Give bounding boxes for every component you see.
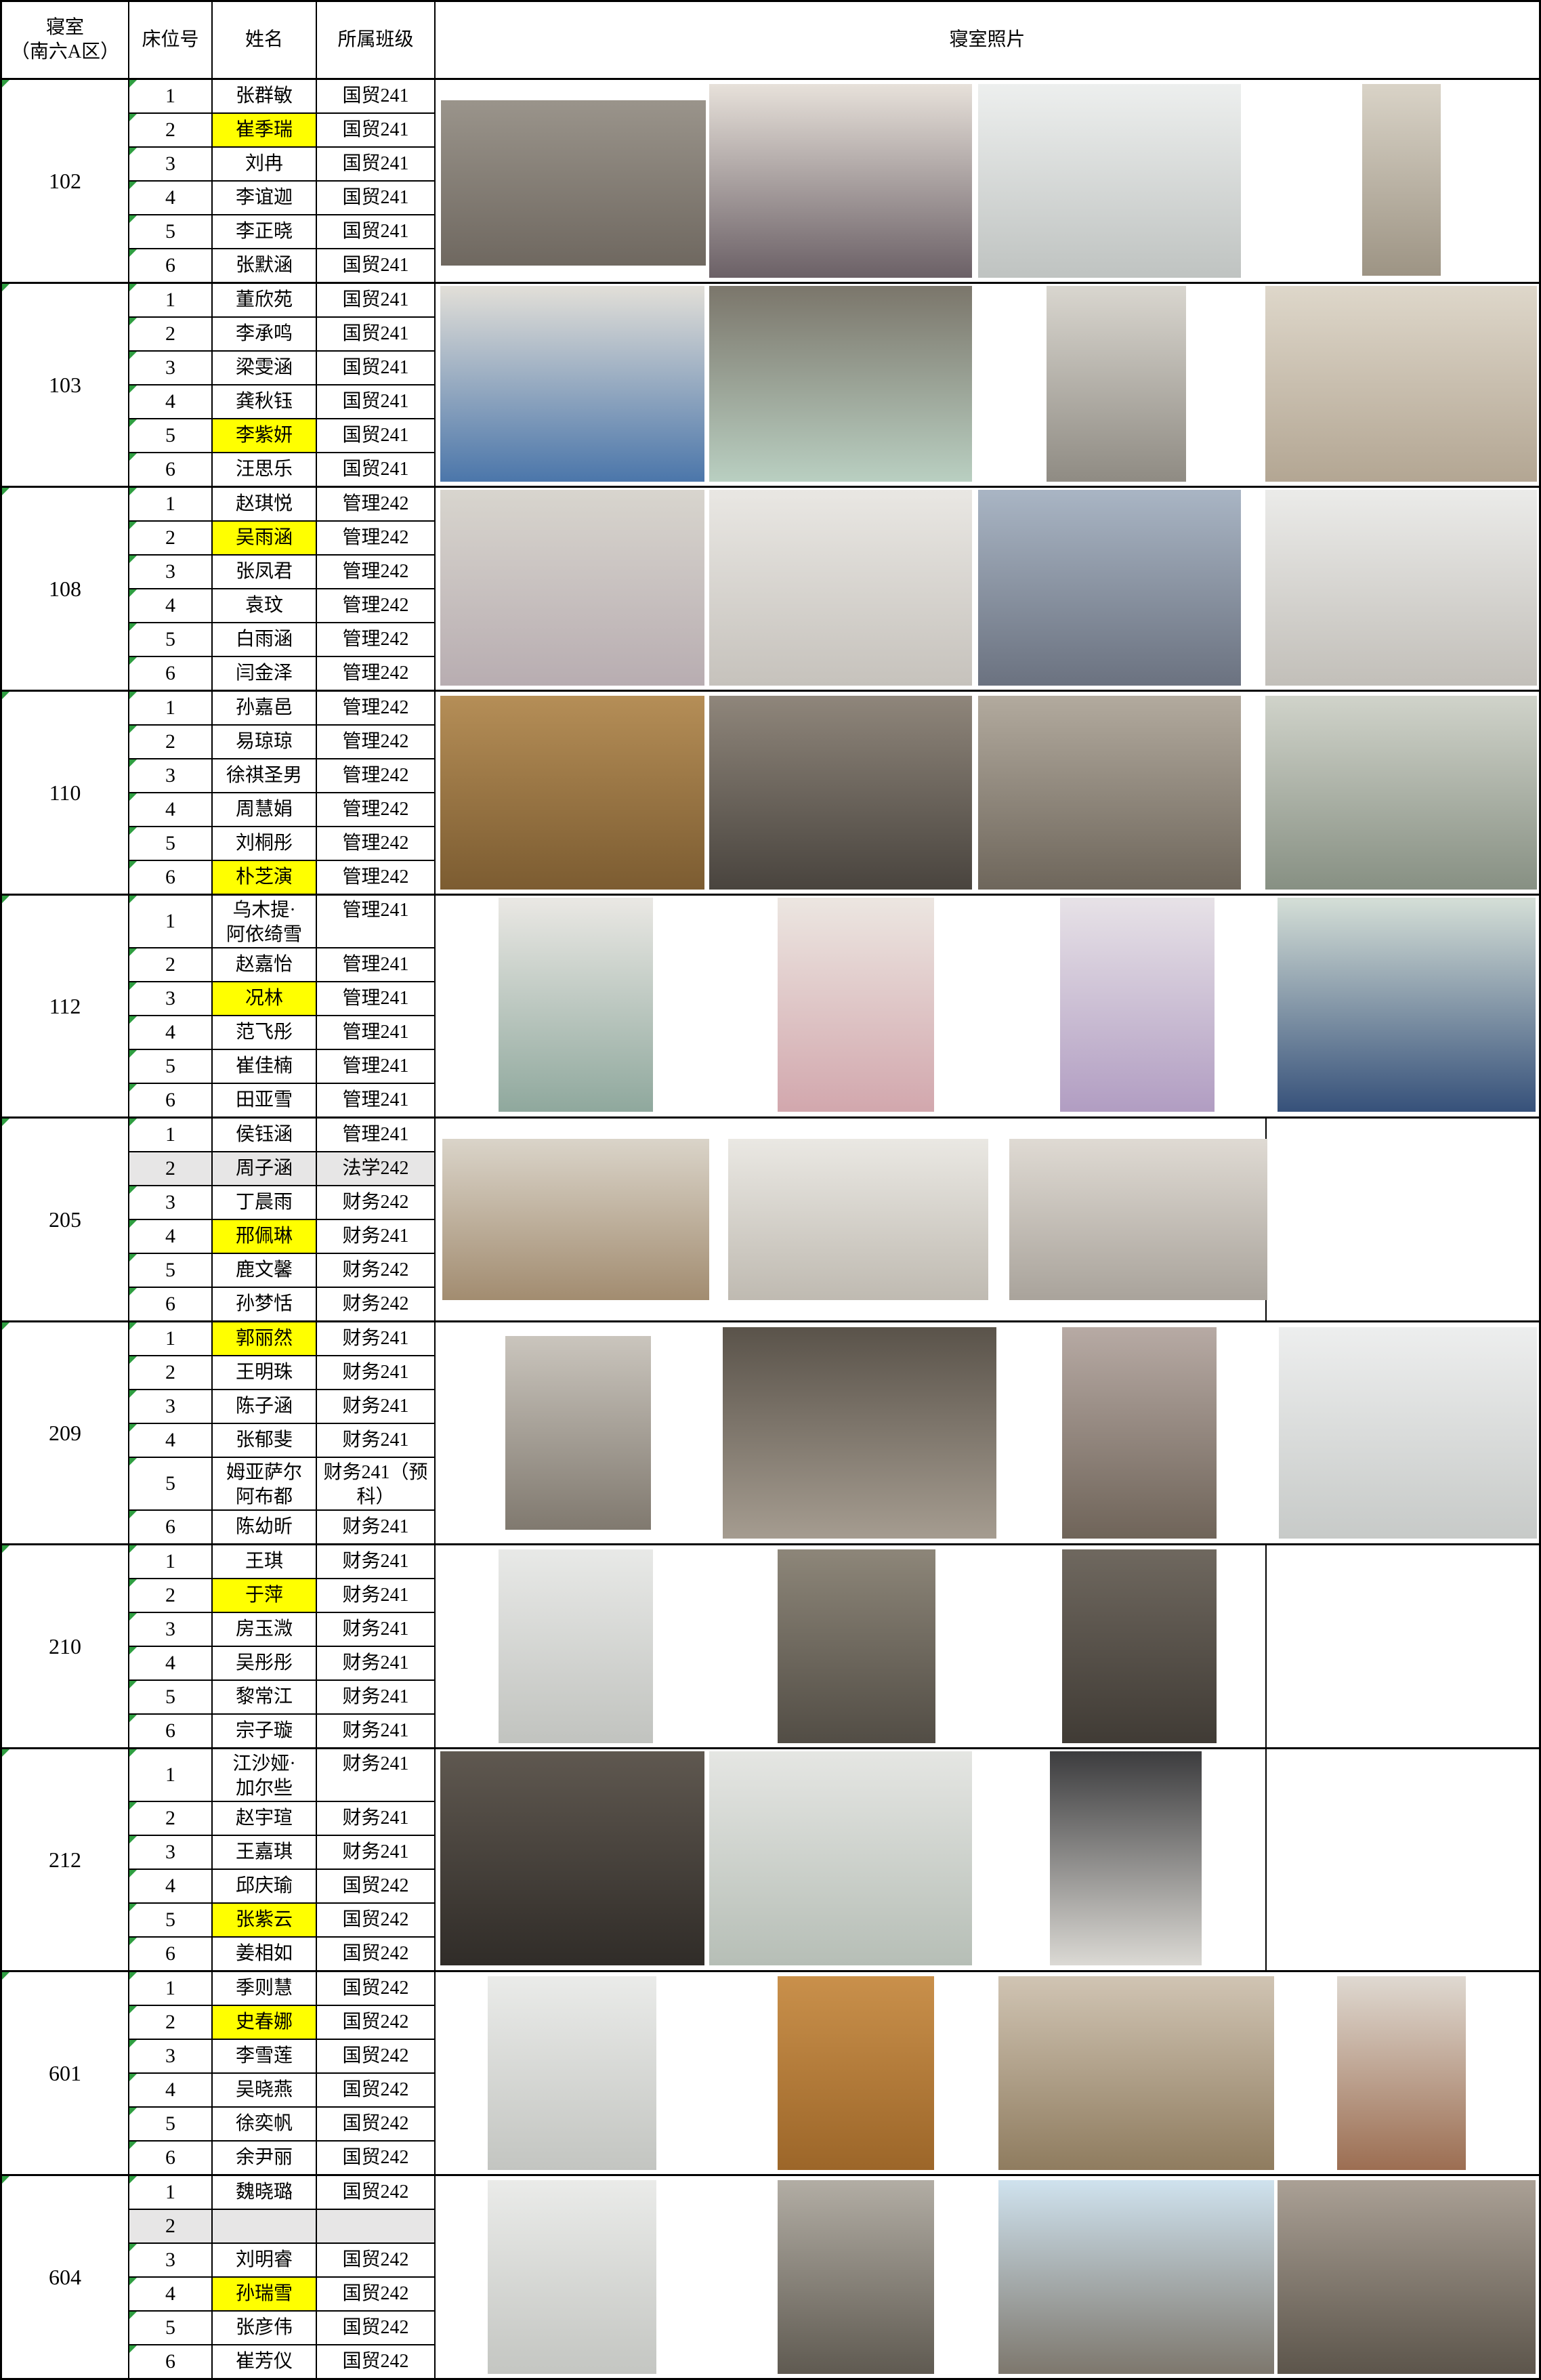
bed-number: 2 (165, 119, 175, 142)
bed-number-cell[interactable]: 6 (129, 1715, 213, 1747)
class-cell[interactable]: 国贸242 (317, 2278, 436, 2310)
bed-number-cell[interactable]: 4 (129, 2074, 213, 2106)
student-name-cell[interactable]: 周子涵 (213, 1152, 317, 1185)
comment-triangle-icon (129, 114, 137, 121)
room-number-cell[interactable]: 209 (2, 1322, 129, 1543)
class-cell[interactable]: 财务241 (317, 1681, 436, 1713)
room-number: 604 (49, 2265, 81, 2290)
class-cell[interactable]: 国贸241 (317, 182, 436, 214)
room-photos-area (436, 1749, 1539, 1970)
room-number-cell[interactable]: 108 (2, 488, 129, 690)
class-cell[interactable]: 国贸241 (317, 148, 436, 180)
bed-number-cell[interactable]: 1 (129, 488, 213, 520)
student-name-cell[interactable]: 袁玟 (213, 589, 317, 622)
student-name-cell[interactable]: 李紫妍 (213, 419, 317, 452)
bed-number-cell[interactable]: 3 (129, 759, 213, 792)
bed-number-cell[interactable]: 1 (129, 1322, 213, 1355)
student-name-cell[interactable]: 李正晓 (213, 215, 317, 248)
class-cell[interactable]: 财务242 (317, 1186, 436, 1219)
bed-number: 2 (165, 953, 175, 976)
bed-row: 5张紫云国贸242 (129, 1904, 436, 1938)
comment-triangle-icon (129, 1579, 137, 1587)
student-name-cell[interactable]: 赵宇瑄 (213, 1802, 317, 1835)
bed-number-cell[interactable]: 4 (129, 2278, 213, 2310)
class-cell[interactable]: 管理242 (317, 726, 436, 758)
bed-row: 3况林管理241 (129, 982, 436, 1016)
comment-triangle-icon (129, 2176, 137, 2184)
class-cell[interactable]: 管理241 (317, 1084, 436, 1116)
class-cell[interactable]: 国贸241 (317, 318, 436, 350)
bed-number-cell[interactable]: 1 (129, 80, 213, 112)
comment-triangle-icon (2, 1545, 9, 1553)
bed-row: 2赵宇瑄财务241 (129, 1802, 436, 1836)
comment-triangle-icon (129, 1186, 137, 1194)
bed-number-cell[interactable]: 3 (129, 2244, 213, 2276)
beds-column: 1郭丽然财务2412王明珠财务2413陈子涵财务2414张郁斐财务2415姆亚萨… (129, 1322, 436, 1543)
student-name-cell[interactable]: 徐奕帆 (213, 2108, 317, 2140)
student-name-cell[interactable]: 魏晓璐 (213, 2176, 317, 2209)
class-cell[interactable]: 国贸242 (317, 2312, 436, 2344)
bed-row: 1乌木提· 阿依绮雪管理241 (129, 896, 436, 948)
bed-row: 1季则慧国贸242 (129, 1972, 436, 2006)
student-name-cell[interactable]: 孙嘉邑 (213, 692, 317, 724)
student-name-cell[interactable]: 王琪 (213, 1545, 317, 1578)
bed-number-cell[interactable]: 2 (129, 1802, 213, 1835)
comment-triangle-icon (129, 2345, 137, 2353)
comment-triangle-icon (129, 1511, 137, 1518)
bed-number-cell[interactable]: 5 (129, 2312, 213, 2344)
table-header-row: 寝室 （南六A区） 床位号 姓名 所属班级 寝室照片 (2, 2, 1539, 80)
student-name-cell[interactable]: 张默涵 (213, 249, 317, 282)
student-name-cell[interactable]: 黎常江 (213, 1681, 317, 1713)
bed-number-cell[interactable]: 3 (129, 148, 213, 180)
class-cell[interactable]: 财务241 (317, 1322, 436, 1355)
student-name-cell[interactable]: 郭丽然 (213, 1322, 317, 1355)
bed-number-cell[interactable]: 2 (129, 726, 213, 758)
bed-number: 6 (165, 1942, 175, 1965)
class-cell[interactable]: 国贸241 (317, 284, 436, 316)
bed-number-cell[interactable]: 3 (129, 556, 213, 588)
bed-number-cell[interactable]: 5 (129, 1904, 213, 1936)
student-name-cell[interactable]: 张彦伟 (213, 2312, 317, 2344)
student-name-cell[interactable]: 季则慧 (213, 1972, 317, 2005)
room-number-cell[interactable]: 210 (2, 1545, 129, 1747)
class-cell[interactable]: 财务242 (317, 1254, 436, 1287)
bed-number: 4 (165, 186, 175, 209)
class-cell[interactable]: 国贸242 (317, 1870, 436, 1902)
class-cell[interactable]: 管理242 (317, 623, 436, 656)
photo-bunks-white-curtain (1265, 696, 1537, 890)
class-cell[interactable]: 管理242 (317, 692, 436, 724)
room-number-cell[interactable]: 103 (2, 284, 129, 486)
student-name-cell[interactable]: 朴芝演 (213, 861, 317, 894)
student-name-cell[interactable]: 于萍 (213, 1579, 317, 1612)
class-cell[interactable]: 国贸242 (317, 2176, 436, 2209)
class-cell[interactable]: 财务241 (317, 1647, 436, 1679)
bed-number-cell[interactable]: 3 (129, 982, 213, 1015)
class-cell[interactable]: 管理242 (317, 488, 436, 520)
class-cell[interactable]: 管理241 (317, 896, 436, 947)
header-room-column[interactable]: 寝室 （南六A区） (2, 2, 129, 78)
class-cell[interactable]: 国贸242 (317, 2074, 436, 2106)
student-name-cell[interactable]: 赵嘉怡 (213, 948, 317, 981)
photo-shoe-rack (499, 898, 653, 1112)
room-photos-area (436, 2176, 1539, 2378)
bed-number: 5 (165, 1259, 175, 1282)
bed-row: 5黎常江财务241 (129, 1681, 436, 1715)
student-name-cell[interactable]: 刘明睿 (213, 2244, 317, 2276)
student-name-cell[interactable]: 崔佳楠 (213, 1050, 317, 1083)
header-bed-column[interactable]: 床位号 (129, 2, 213, 78)
bed-number-cell[interactable]: 3 (129, 1390, 213, 1423)
bed-number: 5 (165, 832, 175, 855)
bed-number: 2 (165, 2215, 175, 2238)
student-name-cell[interactable] (213, 2210, 317, 2242)
bed-number-cell[interactable]: 3 (129, 1836, 213, 1868)
bed-number-cell[interactable]: 6 (129, 249, 213, 282)
bed-number-cell[interactable]: 3 (129, 352, 213, 384)
class-cell[interactable]: 管理241 (317, 1119, 436, 1151)
photo-corridor-bunks (1047, 286, 1185, 482)
header-name-column[interactable]: 姓名 (213, 2, 317, 78)
student-name-cell[interactable]: 刘冉 (213, 148, 317, 180)
student-name-cell[interactable]: 王明珠 (213, 1356, 317, 1389)
bed-number-cell[interactable]: 4 (129, 793, 213, 826)
bed-number: 5 (165, 1055, 175, 1078)
bed-number-cell[interactable]: 1 (129, 1749, 213, 1801)
class-cell[interactable]: 财务241 (317, 1424, 436, 1457)
student-name-cell[interactable]: 徐祺圣男 (213, 759, 317, 792)
student-name-cell[interactable]: 汪思乐 (213, 453, 317, 486)
student-name-cell[interactable]: 陈子涵 (213, 1390, 317, 1423)
class-cell[interactable]: 管理241 (317, 1050, 436, 1083)
bed-number-cell[interactable]: 5 (129, 419, 213, 452)
bed-number: 4 (165, 2079, 175, 2102)
room-number-cell[interactable]: 112 (2, 896, 129, 1116)
class-cell[interactable]: 国贸242 (317, 2006, 436, 2039)
bed-number-cell[interactable]: 2 (129, 1579, 213, 1612)
bed-number-cell[interactable]: 2 (129, 114, 213, 146)
photo-poster-drawing-on-desk (440, 696, 705, 890)
bed-number-cell[interactable]: 4 (129, 1870, 213, 1902)
bed-number-cell[interactable]: 6 (129, 1938, 213, 1970)
student-name-cell[interactable]: 江沙娅· 加尔些 (213, 1749, 317, 1801)
bed-number-cell[interactable]: 5 (129, 1458, 213, 1509)
class-cell[interactable]: 财务241 (317, 1749, 436, 1801)
bed-row: 4孙瑞雪国贸242 (129, 2278, 436, 2312)
bed-number-cell[interactable]: 2 (129, 318, 213, 350)
comment-triangle-icon (2, 1972, 9, 1980)
bed-number: 6 (165, 662, 175, 685)
class-cell[interactable]: 管理242 (317, 759, 436, 792)
bed-number-cell[interactable]: 2 (129, 522, 213, 554)
bed-number-cell[interactable]: 6 (129, 2345, 213, 2378)
student-name-cell[interactable]: 丁晨雨 (213, 1186, 317, 1219)
bed-number-cell[interactable]: 2 (129, 1356, 213, 1389)
bed-number: 5 (165, 424, 175, 447)
class-cell[interactable]: 国贸241 (317, 453, 436, 486)
comment-triangle-icon (129, 827, 137, 835)
student-name-cell[interactable]: 侯钰涵 (213, 1119, 317, 1151)
photo-dark-bunk-room-door-light (440, 1751, 705, 1965)
bed-number: 2 (165, 1807, 175, 1830)
room-section: 2101王琪财务2412于萍财务2413房玉溦财务2414吴彤彤财务2415黎常… (2, 1545, 1539, 1749)
student-name-cell[interactable]: 况林 (213, 982, 317, 1015)
bed-number: 2 (165, 1361, 175, 1384)
comment-triangle-icon (129, 80, 137, 87)
bed-row: 4李谊迦国贸241 (129, 182, 436, 215)
room-number-cell[interactable]: 212 (2, 1749, 129, 1970)
comment-triangle-icon (2, 2176, 9, 2184)
class-cell[interactable]: 财务241（预 科） (317, 1458, 436, 1509)
bed-row: 5白雨涵管理242 (129, 623, 436, 657)
room-number-cell[interactable]: 205 (2, 1119, 129, 1320)
student-name-cell[interactable]: 田亚雪 (213, 1084, 317, 1116)
photo-clothes-rack-corridor (1278, 2180, 1536, 2374)
comment-triangle-icon (129, 896, 137, 903)
bed-number-cell[interactable]: 3 (129, 1186, 213, 1219)
room-number-cell[interactable]: 102 (2, 80, 129, 282)
student-name-cell[interactable]: 鹿文馨 (213, 1254, 317, 1287)
header-photos-column[interactable]: 寝室照片 (436, 2, 1539, 78)
class-cell[interactable]: 国贸241 (317, 352, 436, 384)
student-name-cell[interactable]: 邱庆瑜 (213, 1870, 317, 1902)
room-photos-area (436, 1545, 1539, 1747)
class-cell[interactable]: 国贸242 (317, 1938, 436, 1970)
student-name-cell[interactable]: 梁雯涵 (213, 352, 317, 384)
bed-number: 3 (165, 1841, 175, 1864)
class-cell[interactable]: 财务241 (317, 1511, 436, 1543)
student-name-cell[interactable]: 宗子璇 (213, 1715, 317, 1747)
student-name-cell[interactable]: 孙梦恬 (213, 1288, 317, 1320)
bed-number: 2 (165, 526, 175, 549)
bed-row: 6陈幼昕财务241 (129, 1511, 436, 1543)
bed-number-cell[interactable]: 1 (129, 1119, 213, 1151)
bed-number-cell[interactable]: 1 (129, 1972, 213, 2005)
header-class-column[interactable]: 所属班级 (317, 2, 436, 78)
student-name-cell[interactable]: 乌木提· 阿依绮雪 (213, 896, 317, 947)
bed-number: 1 (165, 493, 175, 516)
bed-number-cell[interactable]: 5 (129, 1681, 213, 1713)
student-name-cell[interactable]: 张群敏 (213, 80, 317, 112)
class-cell[interactable]: 管理242 (317, 589, 436, 622)
bed-number: 3 (165, 356, 175, 379)
student-name-cell[interactable]: 李雪莲 (213, 2040, 317, 2072)
bed-row: 5鹿文馨财务242 (129, 1254, 436, 1288)
class-cell[interactable]: 财务241 (317, 1390, 436, 1423)
bed-number: 3 (165, 1191, 175, 1214)
class-cell[interactable]: 国贸242 (317, 2345, 436, 2378)
class-cell[interactable]: 财务241 (317, 1220, 436, 1253)
comment-triangle-icon (129, 249, 137, 257)
bed-number-cell[interactable]: 6 (129, 1288, 213, 1320)
bed-row: 2易琼琼管理242 (129, 726, 436, 759)
class-cell[interactable]: 财务241 (317, 1836, 436, 1868)
room-section: 2091郭丽然财务2412王明珠财务2413陈子涵财务2414张郁斐财务2415… (2, 1322, 1539, 1545)
class-cell[interactable]: 财务242 (317, 1288, 436, 1320)
photo-squat-toilet-room (499, 1549, 653, 1743)
photo-blue-curtained-bunks (1278, 898, 1536, 1112)
comment-triangle-icon (129, 1119, 137, 1126)
class-cell[interactable]: 国贸241 (317, 114, 436, 146)
comment-triangle-icon (2, 1119, 9, 1126)
comment-triangle-icon (129, 1288, 137, 1295)
room-number: 601 (49, 2061, 81, 2086)
class-cell[interactable]: 国贸241 (317, 419, 436, 452)
student-name-cell[interactable]: 崔季瑞 (213, 114, 317, 146)
bed-number-cell[interactable]: 1 (129, 692, 213, 724)
bed-number-cell[interactable]: 6 (129, 2142, 213, 2174)
student-name-cell[interactable]: 孙瑞雪 (213, 2278, 317, 2310)
bed-row: 5李紫妍国贸241 (129, 419, 436, 453)
room-number-cell[interactable]: 601 (2, 1972, 129, 2174)
student-name-cell[interactable]: 易琼琼 (213, 726, 317, 758)
bed-row: 4吴彤彤财务241 (129, 1647, 436, 1681)
bed-number-cell[interactable]: 4 (129, 1424, 213, 1457)
student-name-cell[interactable]: 吴雨涵 (213, 522, 317, 554)
comment-triangle-icon (129, 1390, 137, 1398)
student-name-cell[interactable]: 龚秋钰 (213, 385, 317, 418)
student-name-cell[interactable]: 张郁斐 (213, 1424, 317, 1457)
class-cell[interactable]: 国贸242 (317, 2244, 436, 2276)
bed-number-cell[interactable]: 4 (129, 1016, 213, 1049)
student-name-cell[interactable]: 白雨涵 (213, 623, 317, 656)
bed-number-cell[interactable]: 4 (129, 385, 213, 418)
class-cell[interactable]: 管理241 (317, 948, 436, 981)
class-cell[interactable]: 财务241 (317, 1545, 436, 1578)
student-name-cell[interactable]: 吴彤彤 (213, 1647, 317, 1679)
class-cell[interactable]: 国贸242 (317, 2142, 436, 2174)
bed-number-cell[interactable]: 4 (129, 182, 213, 214)
bed-number-cell[interactable]: 4 (129, 1220, 213, 1253)
room-number: 103 (49, 373, 81, 398)
bed-number-cell[interactable]: 1 (129, 896, 213, 947)
bed-number-cell[interactable]: 2 (129, 1152, 213, 1185)
class-cell[interactable]: 财务241 (317, 1579, 436, 1612)
class-cell[interactable]: 管理241 (317, 1016, 436, 1049)
bed-number-cell[interactable]: 5 (129, 2108, 213, 2140)
class-cell[interactable]: 管理242 (317, 657, 436, 690)
student-name-cell[interactable]: 陈幼昕 (213, 1511, 317, 1543)
class-cell[interactable]: 管理242 (317, 861, 436, 894)
student-name-cell[interactable]: 董欣苑 (213, 284, 317, 316)
photo-bunk-room-red-floor (1337, 1976, 1466, 2170)
comment-triangle-icon (129, 1938, 137, 1945)
bed-number-cell[interactable]: 5 (129, 215, 213, 248)
bed-number-cell[interactable]: 6 (129, 657, 213, 690)
room-section: 1121乌木提· 阿依绮雪管理2412赵嘉怡管理2413况林管理2414范飞彤管… (2, 896, 1539, 1119)
bed-number-cell[interactable]: 6 (129, 861, 213, 894)
bed-number: 4 (165, 1021, 175, 1044)
class-cell[interactable] (317, 2210, 436, 2242)
student-name-cell[interactable]: 吴晓燕 (213, 2074, 317, 2106)
student-name-cell[interactable]: 邢佩琳 (213, 1220, 317, 1253)
student-name-cell[interactable]: 张紫云 (213, 1904, 317, 1936)
bed-number-cell[interactable]: 5 (129, 1254, 213, 1287)
class-cell[interactable]: 管理242 (317, 793, 436, 826)
student-name-cell[interactable]: 史春娜 (213, 2006, 317, 2039)
student-name-cell[interactable]: 房玉溦 (213, 1613, 317, 1646)
bed-number: 4 (165, 1875, 175, 1898)
beds-column: 1赵琪悦管理2422吴雨涵管理2423张凤君管理2424袁玟管理2425白雨涵管… (129, 488, 436, 690)
bed-number-cell[interactable]: 1 (129, 1545, 213, 1578)
room-number-cell[interactable]: 110 (2, 692, 129, 894)
room-section: 2121江沙娅· 加尔些财务2412赵宇瑄财务2413王嘉琪财务2414邱庆瑜国… (2, 1749, 1539, 1972)
bed-number-cell[interactable]: 2 (129, 2006, 213, 2039)
class-cell[interactable]: 财务241 (317, 1613, 436, 1646)
class-cell[interactable]: 国贸242 (317, 2040, 436, 2072)
room-photos-area (436, 1119, 1539, 1320)
room-number: 210 (49, 1634, 81, 1659)
student-name-cell[interactable]: 闫金泽 (213, 657, 317, 690)
bed-number-cell[interactable]: 5 (129, 623, 213, 656)
bed-row: 3徐祺圣男管理242 (129, 759, 436, 793)
class-cell[interactable]: 国贸242 (317, 2108, 436, 2140)
class-cell[interactable]: 国贸241 (317, 215, 436, 248)
student-name-cell[interactable]: 范飞彤 (213, 1016, 317, 1049)
student-name-cell[interactable]: 王嘉琪 (213, 1836, 317, 1868)
bed-row: 4吴晓燕国贸242 (129, 2074, 436, 2108)
bed-number-cell[interactable]: 4 (129, 589, 213, 622)
class-cell[interactable]: 国贸241 (317, 385, 436, 418)
class-cell[interactable]: 财务241 (317, 1802, 436, 1835)
bed-number-cell[interactable]: 4 (129, 1647, 213, 1679)
student-name-cell[interactable]: 姆亚萨尔 阿布都 (213, 1458, 317, 1509)
student-name-cell[interactable]: 李谊迦 (213, 182, 317, 214)
class-cell[interactable]: 国贸242 (317, 1904, 436, 1936)
bed-number: 2 (165, 2011, 175, 2034)
class-cell[interactable]: 管理242 (317, 522, 436, 554)
bed-number-cell[interactable]: 6 (129, 1511, 213, 1543)
student-name-cell[interactable]: 崔芳仪 (213, 2345, 317, 2378)
student-name-cell[interactable]: 姜相如 (213, 1938, 317, 1970)
comment-triangle-icon (129, 657, 137, 665)
bed-number-cell[interactable]: 6 (129, 453, 213, 486)
student-name-cell[interactable]: 李承鸣 (213, 318, 317, 350)
class-cell[interactable]: 国贸242 (317, 1972, 436, 2005)
bed-number-cell[interactable]: 3 (129, 2040, 213, 2072)
bed-number-cell[interactable]: 2 (129, 948, 213, 981)
class-cell[interactable]: 管理241 (317, 982, 436, 1015)
photo-bunks-near-window (978, 696, 1241, 890)
student-name-cell[interactable]: 周慧娟 (213, 793, 317, 826)
class-cell[interactable]: 财务241 (317, 1356, 436, 1389)
bed-number-cell[interactable]: 6 (129, 1084, 213, 1116)
bed-number-cell[interactable]: 5 (129, 827, 213, 860)
bed-number-cell[interactable]: 2 (129, 2210, 213, 2242)
bed-number-cell[interactable]: 1 (129, 284, 213, 316)
bed-row: 6崔芳仪国贸242 (129, 2345, 436, 2378)
bed-number-cell[interactable]: 1 (129, 2176, 213, 2209)
class-cell[interactable]: 法学242 (317, 1152, 436, 1185)
student-name-cell[interactable]: 余尹丽 (213, 2142, 317, 2174)
class-cell[interactable]: 国贸241 (317, 80, 436, 112)
bed-number-cell[interactable]: 5 (129, 1050, 213, 1083)
student-name-cell[interactable]: 刘桐彤 (213, 827, 317, 860)
bed-number: 2 (165, 1584, 175, 1607)
bed-number-cell[interactable]: 3 (129, 1613, 213, 1646)
photo-washroom-pipes-sink (978, 84, 1241, 278)
comment-triangle-icon (129, 1904, 137, 1911)
class-cell[interactable]: 财务241 (317, 1715, 436, 1747)
room-number-cell[interactable]: 604 (2, 2176, 129, 2378)
student-name-cell[interactable]: 赵琪悦 (213, 488, 317, 520)
class-cell[interactable]: 国贸241 (317, 249, 436, 282)
class-cell[interactable]: 管理242 (317, 556, 436, 588)
student-name-cell[interactable]: 张凤君 (213, 556, 317, 588)
class-cell[interactable]: 管理242 (317, 827, 436, 860)
room-section: 1101孙嘉邑管理2422易琼琼管理2423徐祺圣男管理2424周慧娟管理242… (2, 692, 1539, 896)
